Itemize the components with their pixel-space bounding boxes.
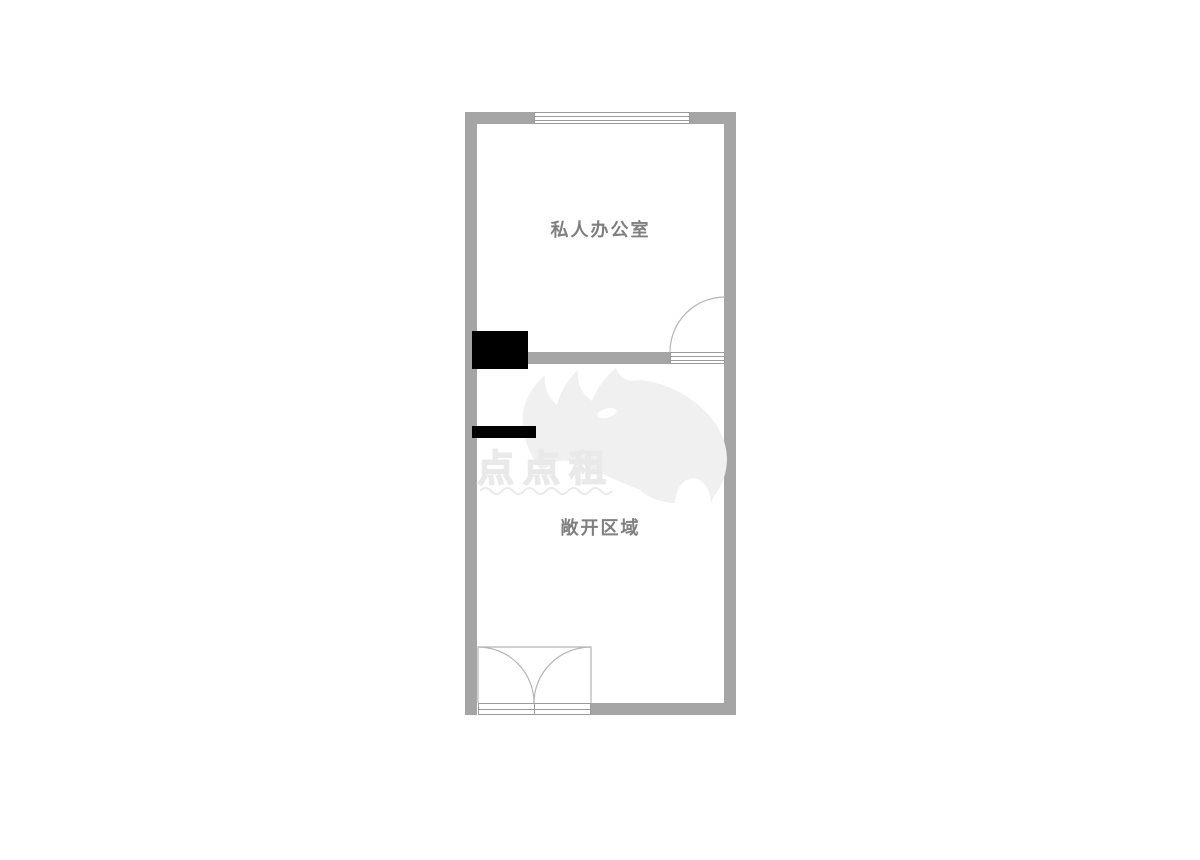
- room-label-private-office: 私人办公室: [465, 219, 736, 241]
- double-door-leaves: [478, 703, 591, 715]
- double-door-swing-left: [478, 647, 534, 703]
- window-icon: [534, 112, 690, 124]
- double-door-swing-right: [534, 647, 591, 703]
- watermark-brand-text: 点点租: [477, 450, 615, 487]
- double-door-frame: [478, 647, 591, 703]
- wall-right: [724, 112, 736, 715]
- plan-overlay: [0, 0, 1200, 860]
- column: [472, 331, 528, 369]
- room-label-open-area: 敞开区域: [465, 517, 736, 539]
- floor-plan: 私人办公室 敞开区域 点点租: [0, 0, 1200, 860]
- column: [472, 426, 536, 438]
- door-swing-arc: [670, 297, 725, 352]
- single-door-leaf: [670, 352, 725, 364]
- rhino-eye-icon: [596, 406, 618, 420]
- wall-left: [465, 112, 477, 715]
- wall-bottom: [591, 703, 736, 715]
